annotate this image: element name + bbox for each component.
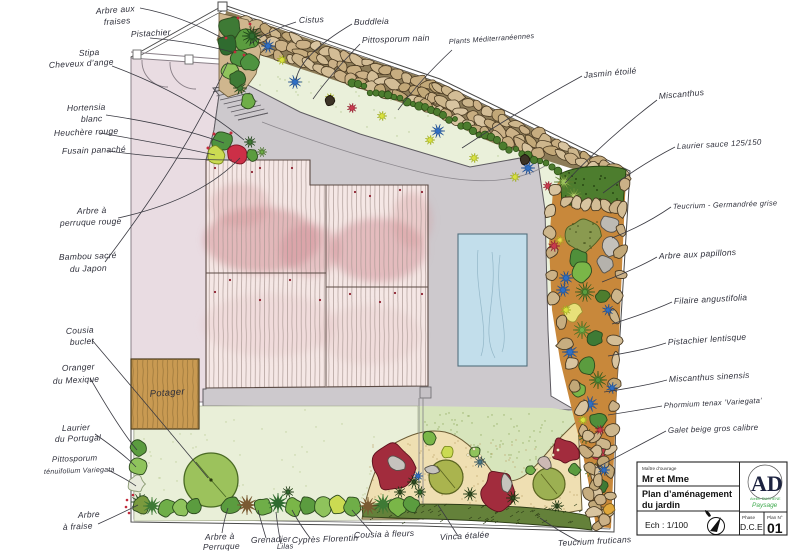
svg-text:Atelier DUCHENE: Atelier DUCHENE: [750, 497, 781, 501]
svg-text:blanc: blanc: [81, 113, 103, 124]
svg-text:Stipa: Stipa: [79, 47, 100, 58]
svg-text:Cistus: Cistus: [299, 14, 325, 25]
svg-text:Paysage: Paysage: [752, 502, 778, 509]
svg-text:D.C.E: D.C.E: [740, 522, 763, 532]
svg-text:Arbre: Arbre: [77, 509, 101, 520]
svg-text:Perruque: Perruque: [203, 541, 240, 551]
svg-text:Pistachier: Pistachier: [131, 27, 172, 39]
svg-text:Arbre à: Arbre à: [76, 205, 107, 216]
svg-text:Hortensia: Hortensia: [67, 102, 106, 113]
svg-text:buclet: buclet: [70, 336, 95, 347]
svg-text:à fraise: à fraise: [63, 520, 93, 532]
svg-text:du Portugal: du Portugal: [55, 432, 102, 444]
svg-text:01: 01: [767, 520, 783, 536]
svg-text:du jardin: du jardin: [642, 500, 680, 510]
svg-text:AD: AD: [751, 471, 783, 496]
svg-text:Maître d’ouvrage: Maître d’ouvrage: [642, 466, 677, 471]
svg-text:Phase: Phase: [742, 515, 755, 520]
svg-text:fraises: fraises: [103, 15, 131, 27]
svg-text:Buddleia: Buddleia: [354, 16, 389, 27]
svg-text:Oranger: Oranger: [62, 361, 96, 373]
svg-text:Laurier: Laurier: [62, 422, 91, 433]
svg-text:Bambou sacré: Bambou sacré: [59, 250, 117, 262]
svg-text:Plan d’aménagement: Plan d’aménagement: [642, 489, 732, 499]
svg-text:Cousia: Cousia: [66, 325, 94, 336]
svg-text:du Japon: du Japon: [70, 263, 107, 274]
svg-text:Pittosporum: Pittosporum: [52, 453, 98, 464]
svg-text:Ech : 1/100: Ech : 1/100: [645, 520, 688, 530]
svg-text:Cousia à fleurs: Cousia à fleurs: [354, 528, 415, 540]
svg-text:Mr et Mme: Mr et Mme: [642, 474, 689, 485]
